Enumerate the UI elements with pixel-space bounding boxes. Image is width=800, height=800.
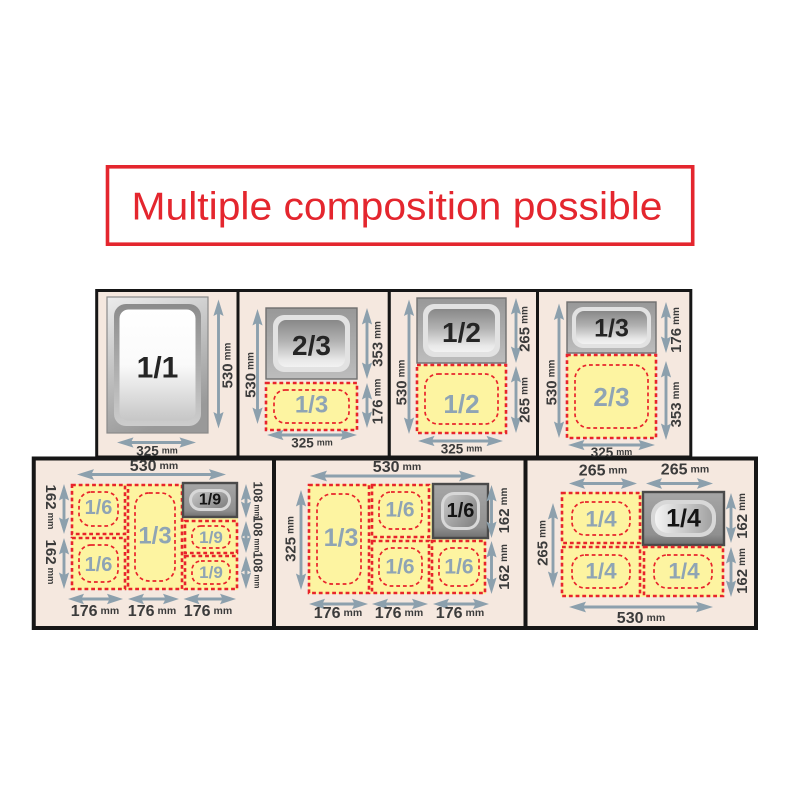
svg-text:530mm: 530mm bbox=[617, 610, 665, 627]
svg-text:1/6: 1/6 bbox=[85, 497, 113, 519]
svg-text:2/3: 2/3 bbox=[593, 382, 629, 412]
svg-text:1/6: 1/6 bbox=[385, 556, 414, 579]
svg-text:1/3: 1/3 bbox=[594, 315, 629, 343]
svg-text:176mm: 176mm bbox=[436, 605, 484, 622]
svg-text:1/3: 1/3 bbox=[324, 524, 359, 552]
svg-text:2/3: 2/3 bbox=[292, 330, 331, 361]
svg-text:1/4: 1/4 bbox=[668, 559, 700, 584]
svg-text:1/1: 1/1 bbox=[137, 352, 179, 385]
svg-text:176mm: 176mm bbox=[375, 605, 423, 622]
svg-text:265mm: 265mm bbox=[579, 462, 627, 479]
svg-text:176mm: 176mm bbox=[71, 603, 119, 620]
svg-text:1/6: 1/6 bbox=[444, 556, 473, 579]
svg-text:176mm: 176mm bbox=[184, 603, 232, 620]
svg-text:1/2: 1/2 bbox=[443, 389, 479, 419]
svg-text:530mm: 530mm bbox=[130, 458, 178, 475]
svg-text:530mm: 530mm bbox=[373, 459, 421, 476]
svg-text:1/9: 1/9 bbox=[199, 528, 223, 547]
svg-text:1/3: 1/3 bbox=[295, 392, 328, 419]
svg-text:176mm: 176mm bbox=[314, 605, 362, 622]
svg-text:265mm: 265mm bbox=[661, 461, 709, 478]
svg-text:1/4: 1/4 bbox=[585, 559, 617, 584]
svg-text:1/9: 1/9 bbox=[199, 492, 221, 509]
svg-text:1/4: 1/4 bbox=[666, 505, 701, 533]
svg-text:1/4: 1/4 bbox=[585, 507, 617, 532]
svg-text:1/2: 1/2 bbox=[442, 317, 481, 348]
svg-text:1/6: 1/6 bbox=[385, 499, 414, 522]
svg-text:1/6: 1/6 bbox=[85, 554, 113, 576]
svg-text:1/6: 1/6 bbox=[447, 500, 475, 522]
svg-text:Multiple composition possible: Multiple composition possible bbox=[132, 186, 663, 229]
svg-text:1/9: 1/9 bbox=[199, 563, 223, 582]
svg-text:1/3: 1/3 bbox=[138, 523, 171, 550]
svg-text:176mm: 176mm bbox=[128, 603, 176, 620]
